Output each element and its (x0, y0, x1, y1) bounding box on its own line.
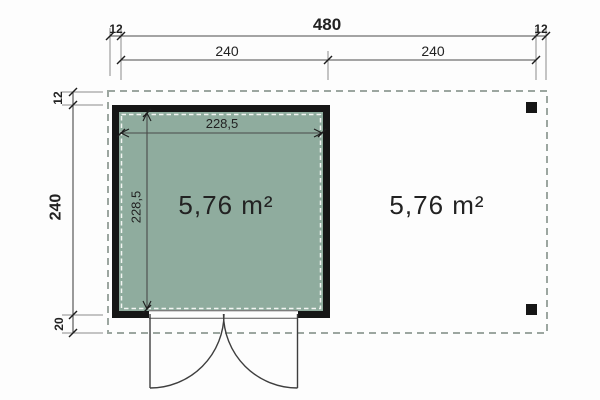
dim-label-room-width: 228,5 (206, 116, 239, 131)
dim-label-overhang-bottom: 20 (52, 317, 66, 331)
terrace-area-label: 5,76 m² (389, 190, 484, 220)
dim-label-bay-left: 240 (215, 43, 239, 59)
room: 5,76 m² (112, 105, 330, 318)
dim-label-overhang-left: 12 (109, 22, 123, 36)
dim-label-overhang-top: 12 (51, 91, 65, 105)
post-top-right (526, 102, 537, 113)
floor-plan-drawing: 5,76 m² 5,76 m² 12 480 12 (0, 0, 600, 400)
dim-label-overhang-right: 12 (534, 22, 548, 36)
room-area-label: 5,76 m² (178, 190, 273, 220)
dim-label-total-width: 480 (313, 15, 341, 34)
dim-label-bay-right: 240 (421, 43, 445, 59)
dim-label-total-depth: 240 (48, 194, 65, 221)
post-bottom-right (526, 304, 537, 315)
dim-label-room-depth: 228,5 (129, 191, 144, 224)
